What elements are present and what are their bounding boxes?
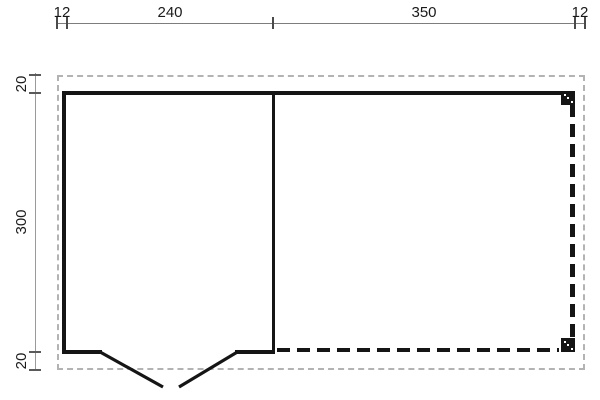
dimension-label-room-width: 240 [120,4,220,22]
dimension-label-overhang-top: 20 [13,64,31,104]
post-dot [567,97,569,99]
canopy-edge-bottom [277,348,559,353]
post-top-right [561,91,575,105]
wall-bottom-left [62,350,102,354]
dimension-label-depth: 300 [13,192,31,252]
post-dot [571,101,573,103]
wall-partition [272,91,276,354]
dimension-label-canopy-width: 350 [374,4,474,22]
left-dimension-line [35,73,36,371]
roof-outline [57,75,585,370]
floor-plan-canvas: 12 240 350 12 20 300 20 [0,0,600,400]
wall-bottom-mid [235,350,275,354]
dimension-label-overhang-right: 12 [560,4,600,22]
dimension-label-overhang-bottom: 20 [13,341,31,381]
dimension-tick [272,17,274,29]
wall-top [62,91,575,95]
canopy-edge-right [570,104,575,338]
post-dot [564,94,566,96]
post-bottom-right [561,338,575,352]
post-dot [571,348,573,350]
post-dot [564,341,566,343]
wall-left [62,91,66,354]
top-dimension-line [57,23,585,24]
post-dot [567,344,569,346]
dimension-label-overhang-left: 12 [42,4,82,22]
